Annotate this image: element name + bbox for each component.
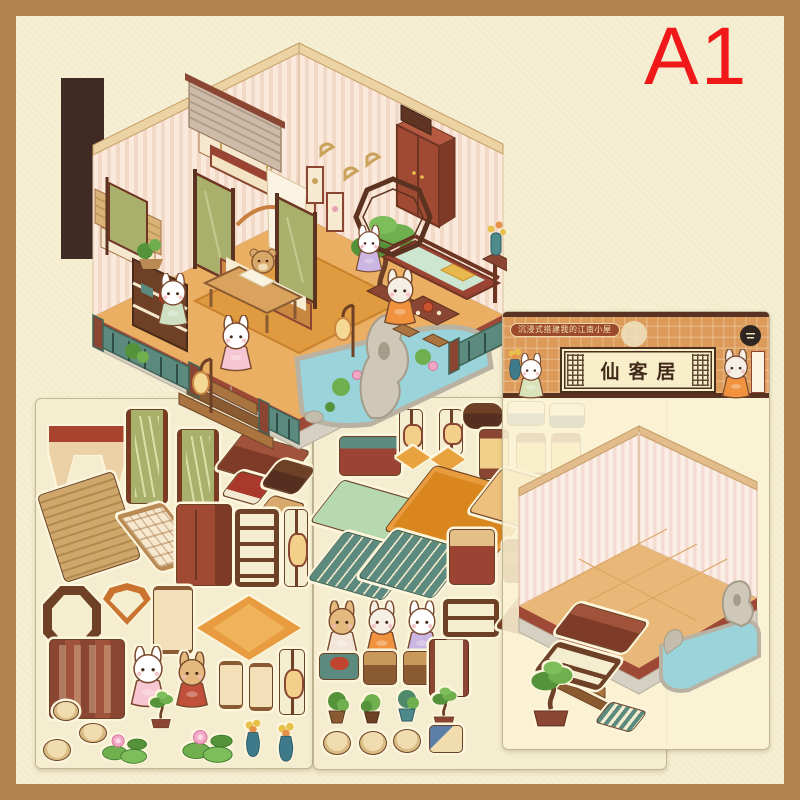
wardrobe-sticker [176, 504, 232, 586]
mini-scroll-sticker [219, 661, 243, 709]
potted-plant-sticker [393, 689, 421, 723]
bun-sticker [359, 731, 387, 755]
lantern-stand-sticker [284, 509, 308, 587]
bonsai-sticker [523, 660, 579, 732]
rock-sticker [53, 701, 79, 721]
label-scroll-icon [751, 351, 765, 393]
sticker-sheet-furniture [35, 398, 313, 769]
bonsai-pot-sticker [143, 691, 179, 731]
potted-plant-sticker [359, 693, 385, 725]
product-title: 仙客居 [591, 357, 684, 384]
flower-vase-sticker [241, 717, 265, 761]
lotus-pads-sticker [179, 721, 237, 765]
book-and-bun-sticker [429, 725, 463, 753]
room-illustration [71, 21, 507, 453]
bun-sticker [393, 729, 421, 753]
low-shelf-sticker [443, 599, 499, 637]
packaging-label: 沉浸式搭建我的江南小屋 仙客居 [503, 312, 769, 398]
mini-scroll-sticker [249, 663, 273, 711]
floor-lantern-sticker [279, 649, 305, 715]
cat-figure-sticker [363, 599, 401, 659]
bonsai-sticker [425, 687, 463, 729]
bun-sticker [323, 731, 351, 755]
box-stool-sticker [363, 651, 397, 685]
sheet-code-label: A1 [644, 12, 748, 102]
rock-sticker [43, 739, 71, 761]
display-shelf-sticker [235, 509, 279, 587]
title-plaque: 仙客居 [560, 347, 716, 393]
lattice-ornament-icon [692, 354, 709, 386]
wall-scroll-sticker [153, 586, 193, 654]
brand-logo-icon [740, 325, 761, 346]
moon-decoration [621, 321, 647, 347]
sleeping-bear [250, 249, 276, 273]
fan-window-sticker [103, 583, 151, 625]
series-tagline: 沉浸式搭建我的江南小屋 [510, 323, 620, 337]
flower-vase-sticker [273, 721, 299, 765]
label-plant-icon [505, 347, 525, 383]
lotus-pads-sticker [99, 727, 151, 765]
potted-plant-sticker [323, 691, 351, 725]
food-plate-sticker [319, 653, 359, 680]
backdrop-sheet: 沉浸式搭建我的江南小屋 仙客居 [502, 311, 770, 750]
bear-figure-sticker [323, 599, 361, 659]
product-photo-canvas: A1 [16, 16, 784, 784]
side-table-sticker [449, 529, 495, 585]
lattice-ornament-icon [567, 354, 584, 386]
